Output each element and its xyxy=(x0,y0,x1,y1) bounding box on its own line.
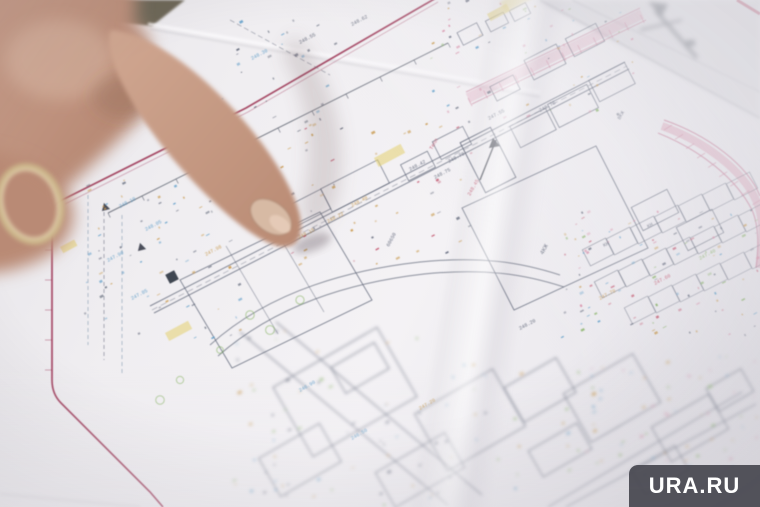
ura-ru-watermark: URA.RU xyxy=(629,465,760,507)
pointing-hand xyxy=(0,0,760,507)
watermark-text: URA.RU xyxy=(649,473,741,499)
photo-hand-pointing-at-site-plan: 248.78248.75248.42247.55248.76248.45Тепл… xyxy=(0,0,760,507)
